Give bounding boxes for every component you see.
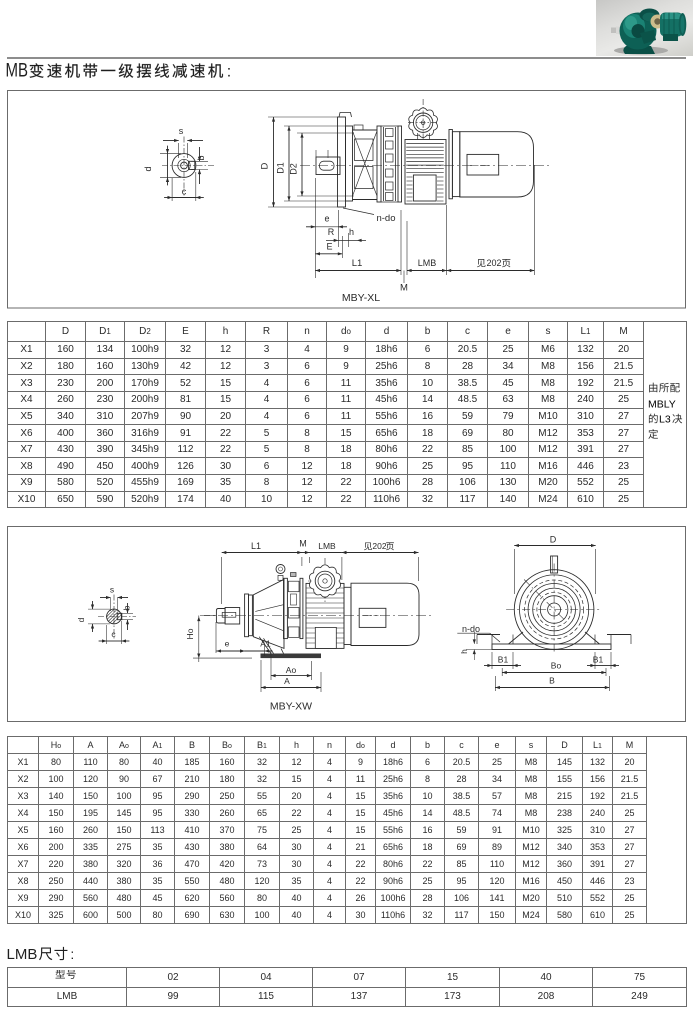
svg-text:d: d (76, 617, 86, 622)
svg-text:L1: L1 (251, 541, 261, 551)
svg-text:B: B (549, 676, 555, 686)
svg-text:B1: B1 (593, 655, 604, 665)
svg-text:M: M (299, 539, 307, 549)
svg-text:s: s (179, 126, 184, 136)
svg-text:LMB: LMB (7, 946, 38, 963)
svg-text:n-do: n-do (462, 624, 480, 634)
svg-text:n-do: n-do (376, 213, 395, 224)
svg-text:Ho: Ho (185, 628, 195, 639)
svg-text:MBY-XW: MBY-XW (270, 701, 312, 713)
svg-text:E: E (326, 242, 332, 252)
svg-text:M: M (400, 283, 408, 294)
svg-text:A: A (284, 676, 290, 686)
svg-text:R: R (328, 227, 335, 237)
svg-text:D: D (260, 162, 271, 169)
svg-text:Bo: Bo (551, 661, 562, 671)
svg-text:B1: B1 (498, 655, 509, 665)
svg-text:MBY-XL: MBY-XL (342, 292, 380, 304)
svg-text:Ao: Ao (286, 665, 297, 675)
svg-text:b: b (196, 155, 206, 160)
svg-text:A1: A1 (260, 639, 271, 649)
svg-text:s: s (110, 585, 114, 595)
svg-text:D: D (550, 535, 557, 545)
svg-text:h: h (349, 227, 354, 237)
svg-text:D2: D2 (289, 163, 299, 175)
svg-text:LMB: LMB (318, 541, 336, 551)
svg-text:c: c (182, 187, 187, 197)
svg-text:L1: L1 (352, 258, 363, 269)
svg-text:MBLY: MBLY (648, 399, 676, 411)
svg-text:e: e (324, 214, 329, 224)
svg-text:D1: D1 (276, 162, 286, 174)
svg-text:c: c (111, 629, 116, 639)
svg-text:LMB: LMB (418, 258, 437, 268)
svg-text:202: 202 (486, 258, 501, 268)
svg-text:202: 202 (372, 541, 386, 551)
svg-text:d: d (143, 166, 153, 171)
svg-text::: : (70, 946, 74, 962)
svg-text:e: e (225, 639, 230, 649)
svg-text:L3: L3 (659, 414, 671, 426)
